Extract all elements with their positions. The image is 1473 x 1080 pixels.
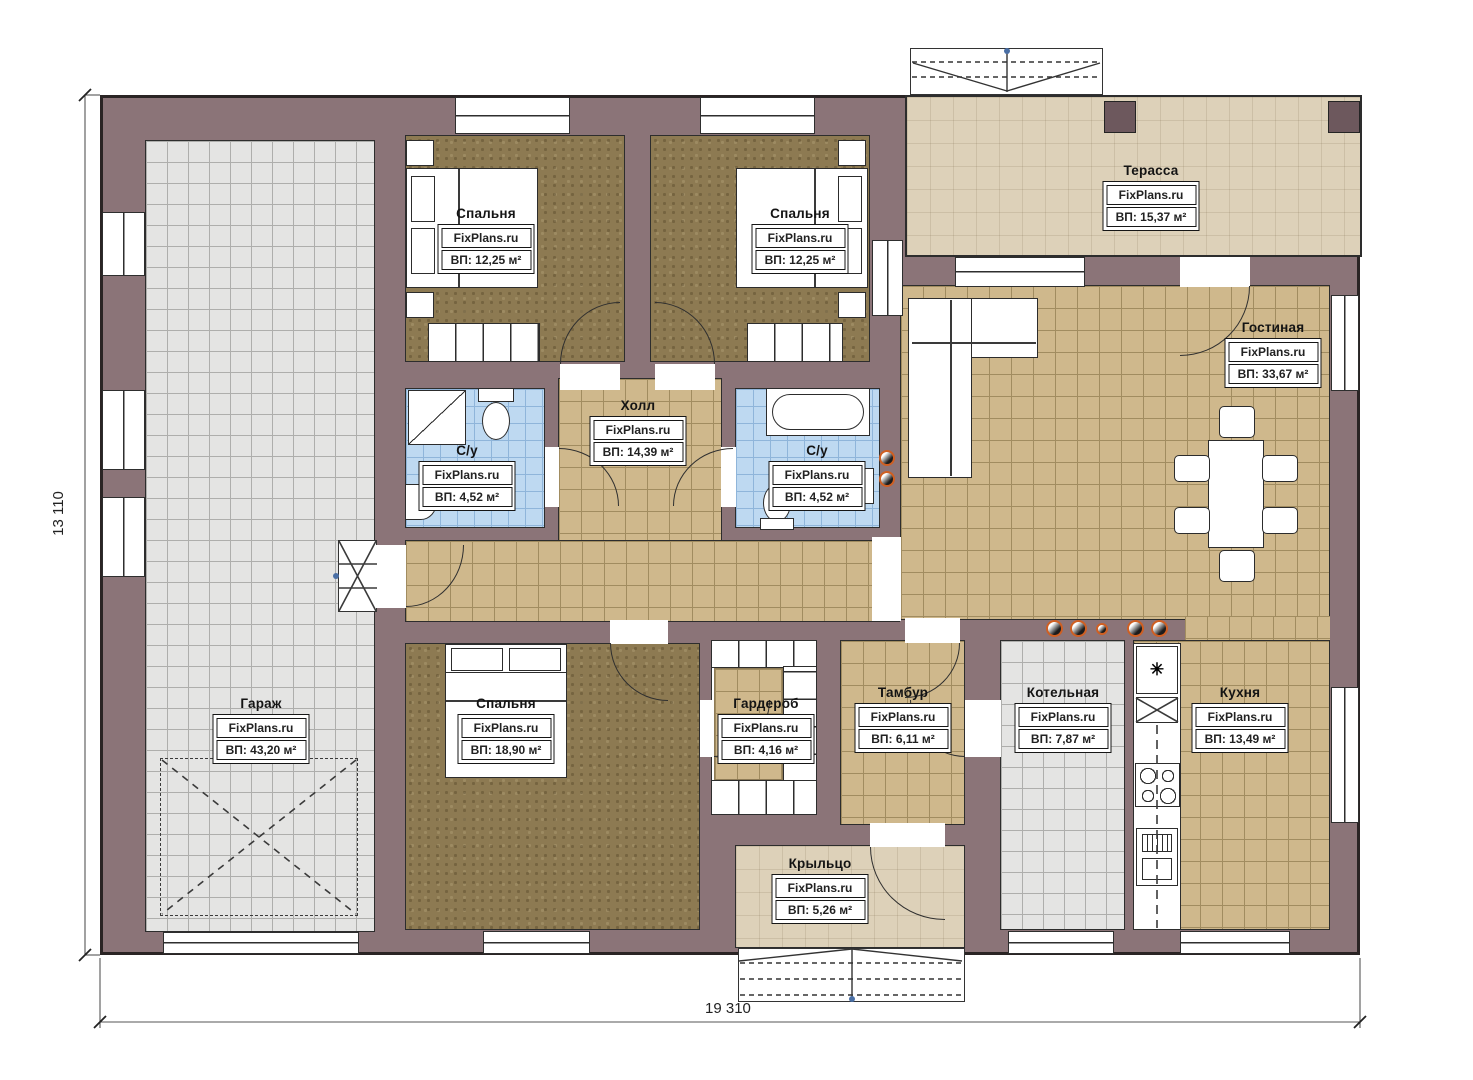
sink-bowl-icon bbox=[1142, 858, 1172, 880]
garage-gate bbox=[163, 932, 359, 954]
chair bbox=[1174, 507, 1210, 534]
room-label-bath2: С/у FixPlans.ruВП: 4,52 м² bbox=[769, 443, 866, 511]
wardrobe-shelves bbox=[711, 640, 817, 668]
pillow bbox=[411, 176, 435, 222]
vent-icon bbox=[879, 450, 895, 466]
toilet-icon bbox=[482, 402, 510, 440]
floor-plan: ✳ bbox=[0, 0, 1473, 1080]
nightstand bbox=[406, 292, 434, 318]
terrace-pillar bbox=[1328, 101, 1360, 133]
room-label-bedroom1: Спальня FixPlans.ruВП: 12,25 м² bbox=[438, 206, 535, 274]
window bbox=[102, 390, 145, 470]
vent-icon bbox=[1046, 620, 1063, 637]
wardrobe-shelves bbox=[711, 780, 817, 815]
entry-door-opening bbox=[870, 823, 945, 847]
chair bbox=[1219, 406, 1255, 438]
hob-icon bbox=[1136, 697, 1178, 723]
vent-icon bbox=[1127, 620, 1144, 637]
door-opening bbox=[545, 447, 559, 507]
parking-area bbox=[160, 758, 358, 916]
nightstand bbox=[406, 140, 434, 166]
window bbox=[102, 497, 145, 577]
window bbox=[483, 931, 590, 954]
sofa bbox=[908, 298, 972, 478]
nightstand bbox=[838, 292, 866, 318]
corridor-floor bbox=[405, 540, 900, 622]
window bbox=[872, 240, 903, 316]
room-label-tambur: Тамбур FixPlans.ruВП: 6,11 м² bbox=[855, 685, 952, 753]
window bbox=[1331, 687, 1359, 823]
bathtub-basin bbox=[772, 394, 864, 430]
chair bbox=[1262, 507, 1298, 534]
terrace-steps bbox=[910, 48, 1103, 95]
dimension-label-bottom: 19 310 bbox=[705, 1000, 751, 1017]
door-opening bbox=[375, 545, 406, 608]
door-opening bbox=[560, 364, 620, 390]
vent-icon bbox=[1070, 620, 1087, 637]
window bbox=[1180, 931, 1290, 954]
room-label-porch: Крыльцо FixPlans.ruВП: 5,26 м² bbox=[772, 856, 869, 924]
room-label-bedroom2: Спальня FixPlans.ruВП: 12,25 м² bbox=[752, 206, 849, 274]
window bbox=[455, 97, 570, 134]
window bbox=[700, 97, 815, 134]
porch-steps bbox=[738, 948, 965, 1002]
chair bbox=[1174, 455, 1210, 482]
terrace-pillar bbox=[1104, 101, 1136, 133]
room-label-garage: Гараж FixPlans.ruВП: 43,20 м² bbox=[213, 696, 310, 764]
vent-icon bbox=[1151, 620, 1168, 637]
chair bbox=[1219, 550, 1255, 582]
sofa-cushion-line bbox=[950, 300, 952, 476]
room-label-boiler: Котельная FixPlans.ruВП: 7,87 м² bbox=[1015, 685, 1112, 753]
vent-icon bbox=[1096, 623, 1108, 635]
room-label-bath1: С/у FixPlans.ruВП: 4,52 м² bbox=[419, 443, 516, 511]
terrace-slider-window bbox=[955, 257, 1085, 287]
bedroom2-closet bbox=[747, 323, 843, 362]
pillow bbox=[451, 648, 503, 671]
room-label-kitchen: Кухня FixPlans.ruВП: 13,49 м² bbox=[1192, 685, 1289, 753]
door-opening bbox=[700, 700, 714, 757]
boiler-floor bbox=[1000, 640, 1125, 930]
pillow bbox=[411, 228, 435, 274]
fridge-icon: ✳ bbox=[1136, 646, 1178, 694]
dimension-label-left: 13 110 bbox=[50, 491, 67, 536]
toilet-tank bbox=[478, 388, 514, 402]
window bbox=[1331, 295, 1359, 391]
stove-icon bbox=[1135, 763, 1180, 807]
vent-icon bbox=[879, 471, 895, 487]
nightstand bbox=[838, 140, 866, 166]
room-label-terrace: Терасса FixPlans.ruВП: 15,37 м² bbox=[1103, 163, 1200, 231]
toilet-tank bbox=[760, 518, 794, 530]
window bbox=[1008, 931, 1114, 954]
terrace-door-opening bbox=[1180, 257, 1250, 287]
door-opening bbox=[905, 618, 960, 643]
passage-opening bbox=[872, 537, 901, 621]
room-label-living: Гостиная FixPlans.ruВП: 33,67 м² bbox=[1225, 320, 1322, 388]
room-label-hall: Холл FixPlans.ruВП: 14,39 м² bbox=[590, 398, 687, 466]
dining-table bbox=[1208, 440, 1264, 548]
door-opening bbox=[655, 364, 715, 390]
shower-icon bbox=[408, 390, 466, 445]
pillow bbox=[509, 648, 561, 671]
sofa-cushion-line bbox=[912, 342, 1036, 344]
window bbox=[102, 212, 145, 276]
door-opening bbox=[610, 620, 668, 644]
room-label-wardrobe: Гардероб FixPlans.ruВП: 4,16 м² bbox=[718, 696, 815, 764]
bedroom1-closet bbox=[428, 323, 540, 362]
garage-steps bbox=[338, 540, 377, 612]
sink-drainer-icon bbox=[1142, 834, 1172, 852]
door-opening bbox=[965, 700, 1001, 757]
chair bbox=[1262, 455, 1298, 482]
room-label-bedroom3: Спальня FixPlans.ruВП: 18,90 м² bbox=[458, 696, 555, 764]
